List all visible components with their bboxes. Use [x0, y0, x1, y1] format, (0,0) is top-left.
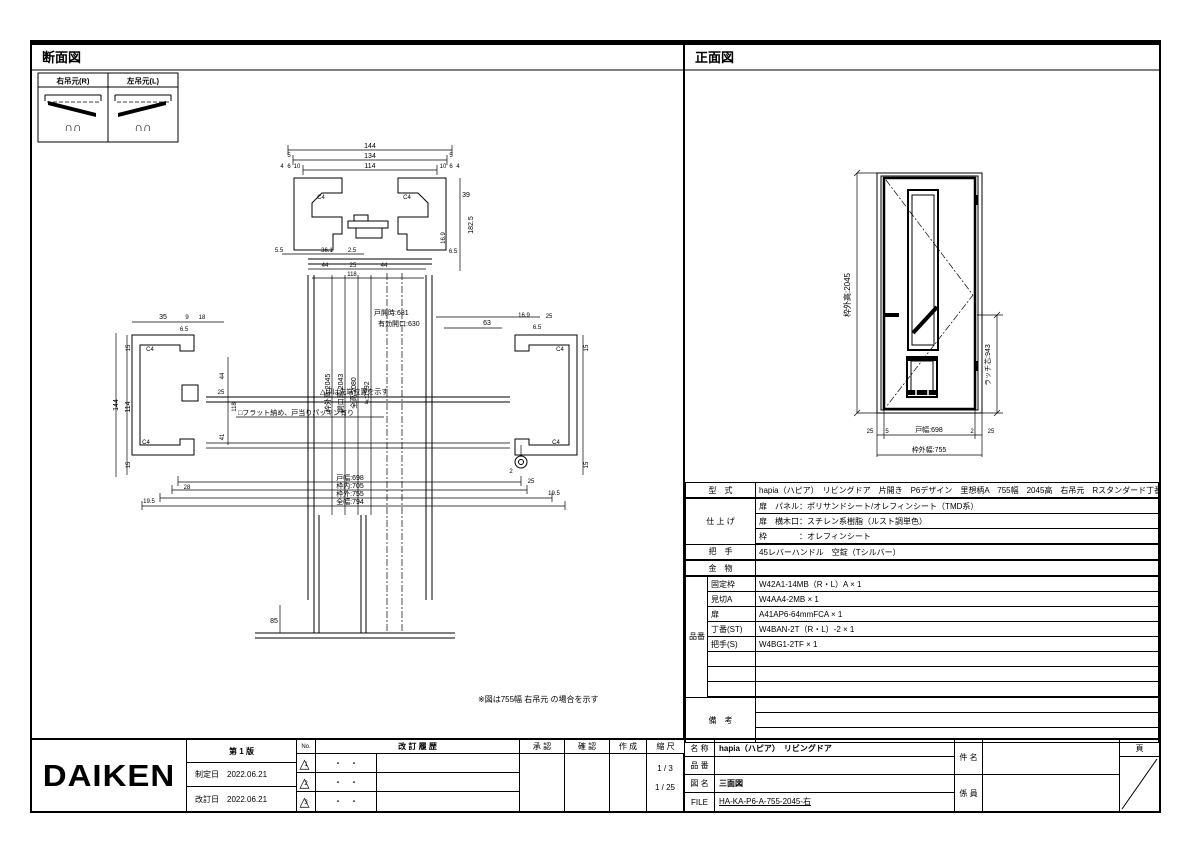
diagonal-slash: [1120, 757, 1159, 811]
dwg-value: 三面図: [719, 779, 743, 788]
spec-row-model: 型 式 hapia（ハピア） リビングドア 片開き P6デザイン 里想柄A 75…: [686, 483, 1159, 499]
create-label: 作 成: [619, 741, 637, 752]
dim-label: 44: [381, 263, 388, 269]
file-header: FILE: [685, 793, 715, 811]
dwg-label: 図 名: [690, 778, 708, 789]
no-header: No.: [297, 740, 316, 754]
dim-label: 15: [126, 461, 132, 468]
dim-label: 25: [988, 429, 995, 435]
spec-table: 型 式 hapia（ハピア） リビングドア 片開き P6デザイン 里想柄A 75…: [685, 482, 1159, 743]
dim-label: 15: [584, 344, 590, 351]
hinge-left-diagram: ∩∩: [115, 95, 171, 134]
section-view-title: 断面図: [42, 50, 81, 65]
revise-date-cell: 改訂日 2022.06.21: [187, 787, 297, 811]
spec-row-finish: 枠 ：オレフィンシート: [686, 529, 1159, 545]
part-name: 扉: [708, 607, 756, 622]
dim-label: 5: [885, 429, 889, 435]
dim-label: 5.5: [275, 248, 284, 254]
enact-label: 制定日: [195, 769, 219, 780]
dim-label: 144: [113, 399, 120, 411]
hinge-left-label: 左吊元(L): [126, 76, 160, 86]
rev-date: ・ ・: [334, 796, 358, 807]
edition-cell: 第 1 版: [187, 740, 297, 763]
check-header: 確 認: [565, 740, 610, 754]
create-cell: [610, 754, 647, 811]
jamb-plan-section: C4 C4 15 144 114 15 35 9 18 6.5 44 25: [113, 309, 590, 510]
dim-label: 戸幅:698: [915, 425, 943, 434]
dim-label: 2: [970, 429, 974, 435]
project-label: 件 名: [959, 752, 977, 763]
chamfer-label: C4: [556, 347, 564, 353]
dim-label: 144: [364, 143, 376, 150]
spec-row-finish: 仕 上 げ 扉 パネル：ポリサンドシート/オレフィンシート（TMD系）: [686, 498, 1159, 514]
spec-row-remarks: [686, 713, 1159, 728]
chamfer-label: C4: [317, 195, 325, 201]
spec-row-hardware: 金 物: [686, 560, 1159, 576]
revision-number: 1: [300, 760, 313, 770]
section-view-drawing: 断面図 右吊元(R) 左吊元(L) ∩∩: [32, 45, 683, 738]
part-name: 丁番(ST): [708, 622, 756, 637]
rev-date-cell: ・ ・: [316, 773, 377, 792]
file-label: FILE: [691, 798, 708, 807]
dim-label: 有効開口:630: [378, 319, 420, 328]
packing-symbol: ∩∩: [134, 120, 151, 134]
revise-label: 改訂日: [195, 794, 219, 805]
door-elevation: [877, 173, 982, 413]
dim-label: 85: [270, 618, 278, 625]
page-header: 頁: [1120, 740, 1159, 757]
dim-label: 41: [220, 433, 226, 440]
dim-label: 114: [364, 163, 375, 170]
dim-label: 16.9: [518, 313, 530, 319]
front-view-panel: 正面図: [685, 45, 1159, 738]
spec-row-part: 丁番(ST)W4BAN-2T（R・L）-2 × 1: [686, 622, 1159, 637]
chamfer-label: C4: [552, 440, 560, 446]
spec-row-part: 把手(S)W4BG1-2TF × 1: [686, 637, 1159, 652]
annotation-packing: □フラット納め、戸当りパッキン有り: [238, 408, 354, 417]
annotation-tip-position: △印は先端位置を示す: [320, 387, 388, 396]
dim-label: 28: [184, 485, 191, 491]
screenshot-root: { "sheet": {"bg": "#ffffff", "line_color…: [0, 0, 1191, 842]
name-header: 名 称: [685, 740, 715, 757]
dim-label: 182.5: [468, 216, 475, 234]
file-value: HA-KA-P6-A-755-2045-右: [719, 797, 811, 806]
spec-row-part: 扉A41AP6-64mmFCA × 1: [686, 607, 1159, 622]
part-value-cell: [715, 757, 955, 775]
dim-label: 25: [528, 479, 535, 485]
spec-row-part: 品番 固定枠 W42A1-14MB（R・L）A × 1: [686, 576, 1159, 592]
spec-value: 45レバーハンドル 空錠（Tシルバー）: [756, 544, 1159, 560]
head-section: 144 134 5 5 114 4 6 10 10 6 4 C4 C4: [275, 143, 475, 278]
dim-label: 15: [584, 461, 590, 468]
dim-label: 2.5: [348, 248, 357, 254]
dim-label: 25: [867, 429, 874, 435]
name-value-cell: hapia（ハピア） リビングドア: [715, 740, 955, 757]
check-cell: [565, 754, 610, 811]
history-header: 改 訂 履 歴: [316, 740, 520, 754]
spec-value: hapia（ハピア） リビングドア 片開き P6デザイン 里想柄A 755幅 2…: [756, 483, 1159, 499]
revision-number: 3: [300, 798, 313, 808]
revision-triangle-icon: △1: [300, 757, 313, 770]
dim-label: 10: [440, 164, 447, 170]
spec-value: [756, 560, 1159, 576]
elevation-dimensions: 枠外高:2045 ラッチ芯:943 25 5 戸幅:698 2 25 枠外幅:7…: [842, 170, 1003, 457]
spec-row-part-empty: [686, 667, 1159, 682]
packing-symbol: ∩∩: [64, 120, 81, 134]
dim-label: 5: [287, 153, 291, 159]
spec-value: 枠 ：オレフィンシート: [756, 529, 1159, 545]
right-panel-header: 正面図: [685, 50, 1159, 70]
spec-row-remarks: 備 考: [686, 697, 1159, 713]
drawing-note: ※図は755幅 右吊元 の場合を示す: [478, 694, 599, 704]
sill-section: 85: [255, 515, 455, 638]
front-view-title: 正面図: [695, 50, 734, 65]
rev-triangle-cell: △2: [297, 773, 316, 792]
approve-cell: [520, 754, 565, 811]
dim-label: 枠外幅:755: [912, 445, 947, 454]
spec-row-part-empty: [686, 682, 1159, 698]
dim-label: 25: [350, 263, 357, 269]
dim-label: 25: [546, 314, 553, 320]
revise-date: 2022.06.21: [227, 795, 267, 804]
dim-label: 2: [509, 469, 513, 475]
height-dim-label: 枠外高:2045: [842, 272, 852, 317]
scale-value-1: 1 / 3: [647, 764, 683, 773]
dim-label: 114: [125, 401, 132, 412]
scale-value-2: 1 / 25: [647, 783, 683, 792]
approve-label: 承 認: [533, 741, 551, 752]
rev-date: ・ ・: [334, 777, 358, 788]
dim-label: 35: [159, 314, 167, 321]
dim-label: 44: [220, 372, 226, 379]
scale-header: 縮 尺: [647, 740, 685, 754]
dim-label: 枠内:705: [336, 481, 364, 490]
part-number: W4BG1-2TF × 1: [756, 637, 1159, 652]
approve-header: 承 認: [520, 740, 565, 754]
hinge-right-diagram: ∩∩: [45, 95, 101, 134]
spec-label: 仕 上 げ: [686, 498, 756, 544]
spec-label: 金 物: [686, 560, 756, 576]
name-value: hapia（ハピア） リビングドア: [719, 744, 832, 753]
door-handle: [885, 313, 899, 317]
rev-date-cell: ・ ・: [316, 754, 377, 773]
chamfer-label: C4: [142, 440, 150, 446]
chamfer-label: C4: [146, 347, 154, 353]
hinge-orientation-table: 右吊元(R) 左吊元(L) ∩∩ ∩∩: [38, 73, 178, 142]
spec-label: 品番: [686, 576, 708, 697]
dim-label: 15: [126, 344, 132, 351]
dim-label: 19.5: [143, 499, 155, 505]
part-label: 品 番: [690, 760, 708, 771]
project-value-cell: [983, 740, 1120, 775]
dim-label: 5: [449, 153, 453, 159]
front-view-drawing: 正面図: [685, 45, 1159, 482]
chamfer-label: C4: [403, 195, 411, 201]
name-label: 名 称: [690, 743, 708, 754]
staff-header: 係 員: [955, 775, 983, 811]
spec-row-finish: 扉 横木口：スチレン系樹脂（ルスト調単色）: [686, 514, 1159, 529]
door-swing-line: [886, 180, 973, 407]
dim-label: 6: [449, 164, 453, 170]
dim-label: 36.1: [321, 248, 333, 254]
hinge-right-label: 右吊元(R): [56, 76, 90, 86]
dim-label: 戸幅:698: [336, 473, 364, 482]
rev-desc-cell: [377, 754, 520, 773]
spec-value: 扉 パネル：ポリサンドシート/オレフィンシート（TMD系）: [756, 498, 1159, 514]
rev-triangle-cell: △3: [297, 792, 316, 811]
edition-label: 第 1 版: [229, 746, 254, 757]
history-label: 改 訂 履 歴: [398, 741, 437, 752]
project-header: 件 名: [955, 740, 983, 775]
spec-label: 備 考: [686, 697, 756, 743]
dim-label: 枠外:755: [336, 489, 364, 498]
daiken-logo: DAIKEN: [43, 758, 176, 793]
part-number: W4AA4-2MB × 1: [756, 592, 1159, 607]
left-panel-header: 断面図: [32, 50, 683, 70]
part-header: 品 番: [685, 757, 715, 775]
spec-label: 把 手: [686, 544, 756, 560]
part-number: W4BAN-2T（R・L）-2 × 1: [756, 622, 1159, 637]
dim-label: 118: [347, 272, 357, 278]
rev-desc-cell: [377, 792, 520, 811]
dim-label: 134: [364, 153, 376, 160]
part-number: W42A1-14MB（R・L）A × 1: [756, 576, 1159, 592]
enact-date: 2022.06.21: [227, 770, 267, 779]
dwg-header: 図 名: [685, 775, 715, 793]
revision-triangle-icon: △3: [300, 795, 313, 808]
spec-label: 型 式: [686, 483, 756, 499]
latch-dim-label: ラッチ芯:943: [983, 344, 992, 386]
revision-triangle-icon: △2: [300, 776, 313, 789]
dim-label: 全幅:794: [336, 497, 364, 506]
staff-label: 係 員: [959, 788, 977, 799]
dim-label: 18: [199, 315, 206, 321]
staff-value-cell: [983, 775, 1120, 811]
spec-value: 扉 横木口：スチレン系樹脂（ルスト調単色）: [756, 514, 1159, 529]
create-header: 作 成: [610, 740, 647, 754]
dim-label: 戸開時:681: [374, 309, 409, 317]
rev-triangle-cell: △1: [297, 754, 316, 773]
dwg-value-cell: 三面図: [715, 775, 955, 793]
hinge-mark: [974, 361, 978, 371]
spec-row-part: 見切AW4AA4-2MB × 1: [686, 592, 1159, 607]
dim-label: 44: [322, 263, 329, 269]
drawing-sheet: 断面図 右吊元(R) 左吊元(L) ∩∩: [30, 40, 1161, 813]
dim-label: 25: [218, 390, 225, 396]
rev-desc-cell: [377, 773, 520, 792]
hinge-mark: [974, 195, 978, 205]
check-label: 確 認: [578, 741, 596, 752]
dim-label: 6.5: [449, 249, 458, 255]
logo-cell: DAIKEN: [32, 740, 187, 811]
dim-label: 39: [462, 192, 470, 199]
dim-label: 10: [294, 164, 301, 170]
dim-label: 19.5: [548, 491, 560, 497]
page-label: 頁: [1136, 743, 1144, 754]
dim-label: 63: [483, 320, 491, 327]
dim-label: 6.5: [533, 325, 542, 331]
file-value-cell: HA-KA-P6-A-755-2045-右: [715, 793, 955, 811]
dim-label: 4: [280, 164, 284, 170]
scale-label: 縮 尺: [656, 741, 674, 752]
scale-cell: 1 / 3 1 / 25: [647, 754, 685, 811]
dim-label: 9: [185, 315, 189, 321]
dim-label: 6.5: [180, 327, 189, 333]
enact-date-cell: 制定日 2022.06.21: [187, 763, 297, 787]
rev-date: ・ ・: [334, 758, 358, 769]
revision-number: 2: [300, 779, 313, 789]
spec-row-handle: 把 手 45レバーハンドル 空錠（Tシルバー）: [686, 544, 1159, 560]
spec-row-part-empty: [686, 652, 1159, 667]
title-block: DAIKEN 第 1 版 制定日 2022.06.21 改訂日 2022.06.…: [32, 738, 1159, 811]
part-name: 把手(S): [708, 637, 756, 652]
rev-date-cell: ・ ・: [316, 792, 377, 811]
section-view-panel: 断面図 右吊元(R) 左吊元(L) ∩∩: [32, 45, 685, 738]
part-name: 固定枠: [708, 576, 756, 592]
page-value-cell: [1120, 757, 1159, 811]
part-name: 見切A: [708, 592, 756, 607]
no-label: No.: [301, 744, 310, 750]
part-number: A41AP6-64mmFCA × 1: [756, 607, 1159, 622]
dim-label: 16.9: [441, 232, 447, 244]
dim-label: 6: [287, 164, 291, 170]
dim-label: 4: [456, 164, 460, 170]
